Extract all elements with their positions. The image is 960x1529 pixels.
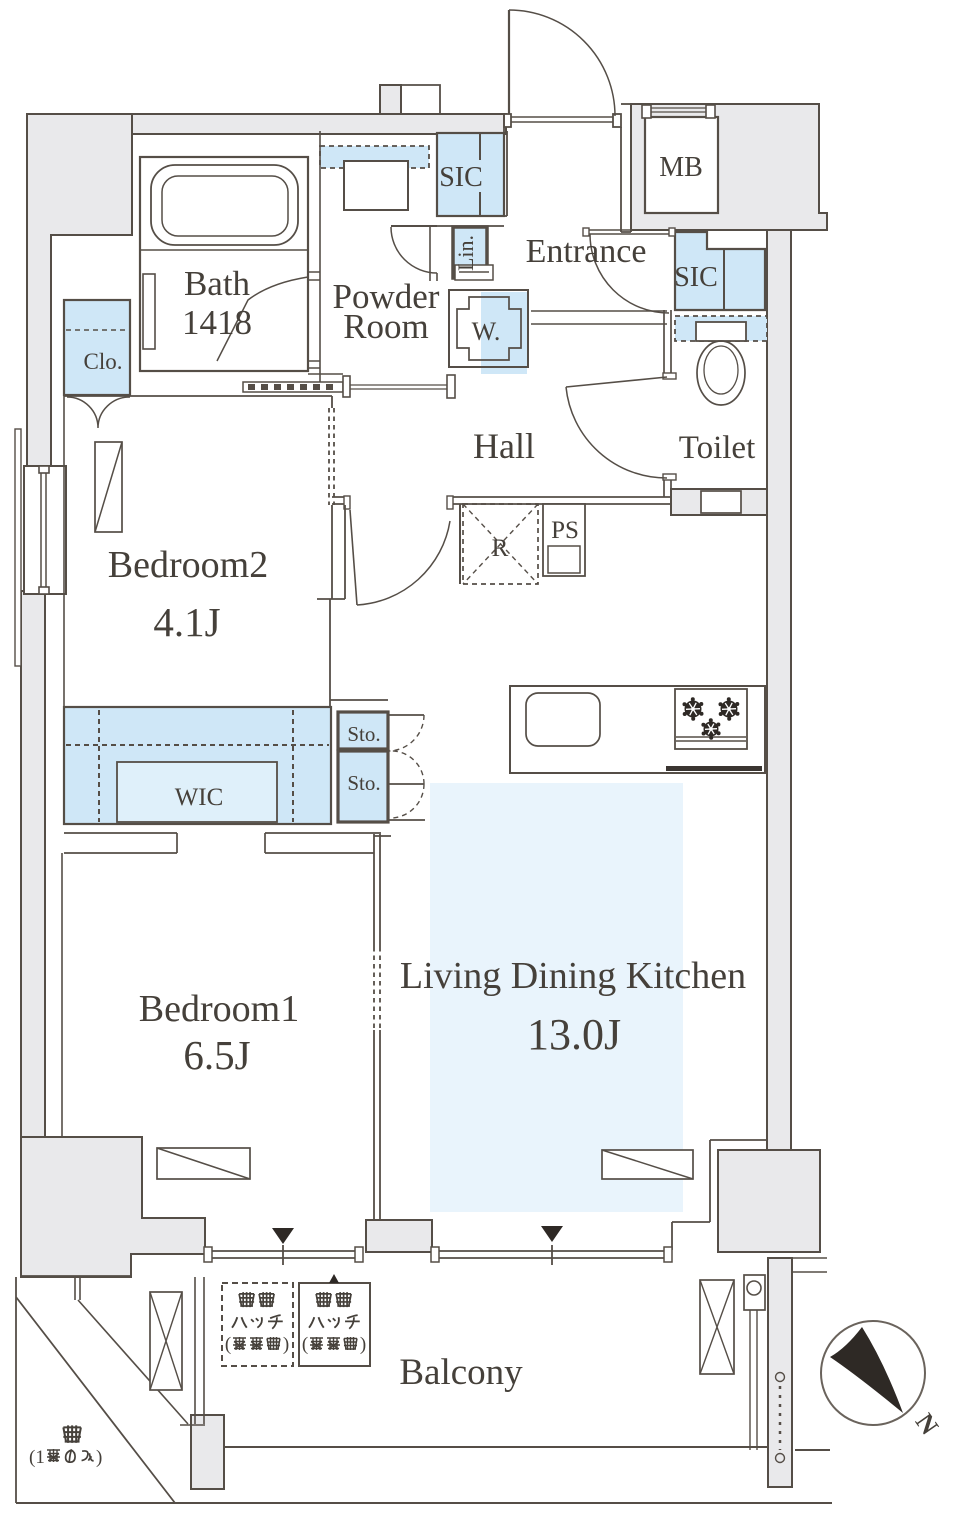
svg-text:Sto.: Sto. (347, 771, 380, 795)
svg-text:Lin.: Lin. (453, 235, 478, 271)
svg-text:Clo.: Clo. (84, 349, 123, 374)
svg-text:13.0J: 13.0J (527, 1010, 621, 1059)
svg-text:(1: (1 (29, 1447, 45, 1468)
svg-text:PS: PS (551, 517, 579, 544)
svg-text:SIC: SIC (439, 162, 483, 193)
svg-text:Entrance: Entrance (526, 233, 647, 270)
svg-text:Balcony: Balcony (399, 1352, 523, 1393)
svg-text:WIC: WIC (175, 784, 224, 811)
svg-text:6.5J: 6.5J (183, 1032, 250, 1078)
svg-text:(: ( (225, 1334, 231, 1355)
svg-text:(: ( (302, 1334, 308, 1355)
svg-text:Toilet: Toilet (679, 430, 756, 466)
svg-text:Sto.: Sto. (347, 722, 380, 746)
svg-text:Living Dining Kitchen: Living Dining Kitchen (400, 955, 746, 997)
svg-text:Hall: Hall (473, 426, 535, 466)
svg-text:): ) (360, 1334, 366, 1355)
svg-text:Bath: Bath (184, 264, 251, 303)
svg-text:4.1J: 4.1J (153, 599, 220, 645)
svg-text:1418: 1418 (182, 303, 252, 342)
svg-text:Bedroom2: Bedroom2 (108, 544, 268, 586)
svg-text:Room: Room (343, 307, 429, 346)
svg-text:W.: W. (472, 317, 501, 346)
svg-text:SIC: SIC (674, 262, 718, 293)
svg-text:): ) (283, 1334, 289, 1355)
svg-text:): ) (96, 1447, 102, 1468)
svg-text:R: R (492, 535, 509, 562)
svg-text:Bedroom1: Bedroom1 (139, 988, 299, 1030)
svg-text:MB: MB (659, 152, 703, 183)
